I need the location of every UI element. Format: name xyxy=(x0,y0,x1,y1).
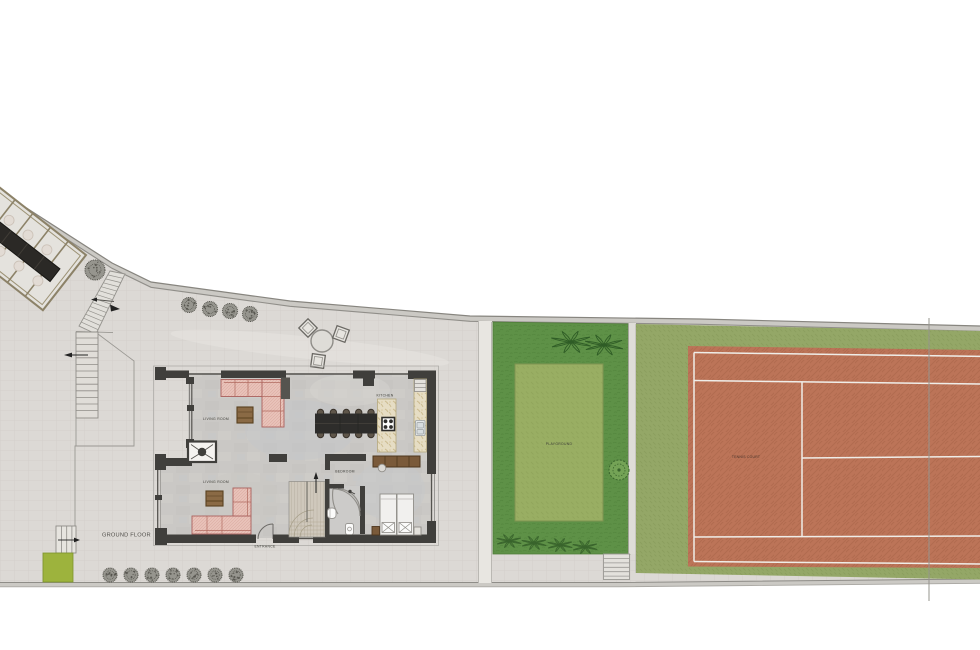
svg-text:ENTRANCE: ENTRANCE xyxy=(254,545,275,549)
svg-text:BEDROOM: BEDROOM xyxy=(335,470,355,474)
svg-text:KITCHEN: KITCHEN xyxy=(377,394,394,398)
svg-text:PLAYGROUND: PLAYGROUND xyxy=(546,442,573,446)
svg-text:LIVING ROOM: LIVING ROOM xyxy=(203,417,229,421)
svg-text:LIVING ROOM: LIVING ROOM xyxy=(203,480,229,484)
svg-text:GROUND FLOOR: GROUND FLOOR xyxy=(102,533,151,539)
svg-text:TENNIS COURT: TENNIS COURT xyxy=(732,455,760,459)
